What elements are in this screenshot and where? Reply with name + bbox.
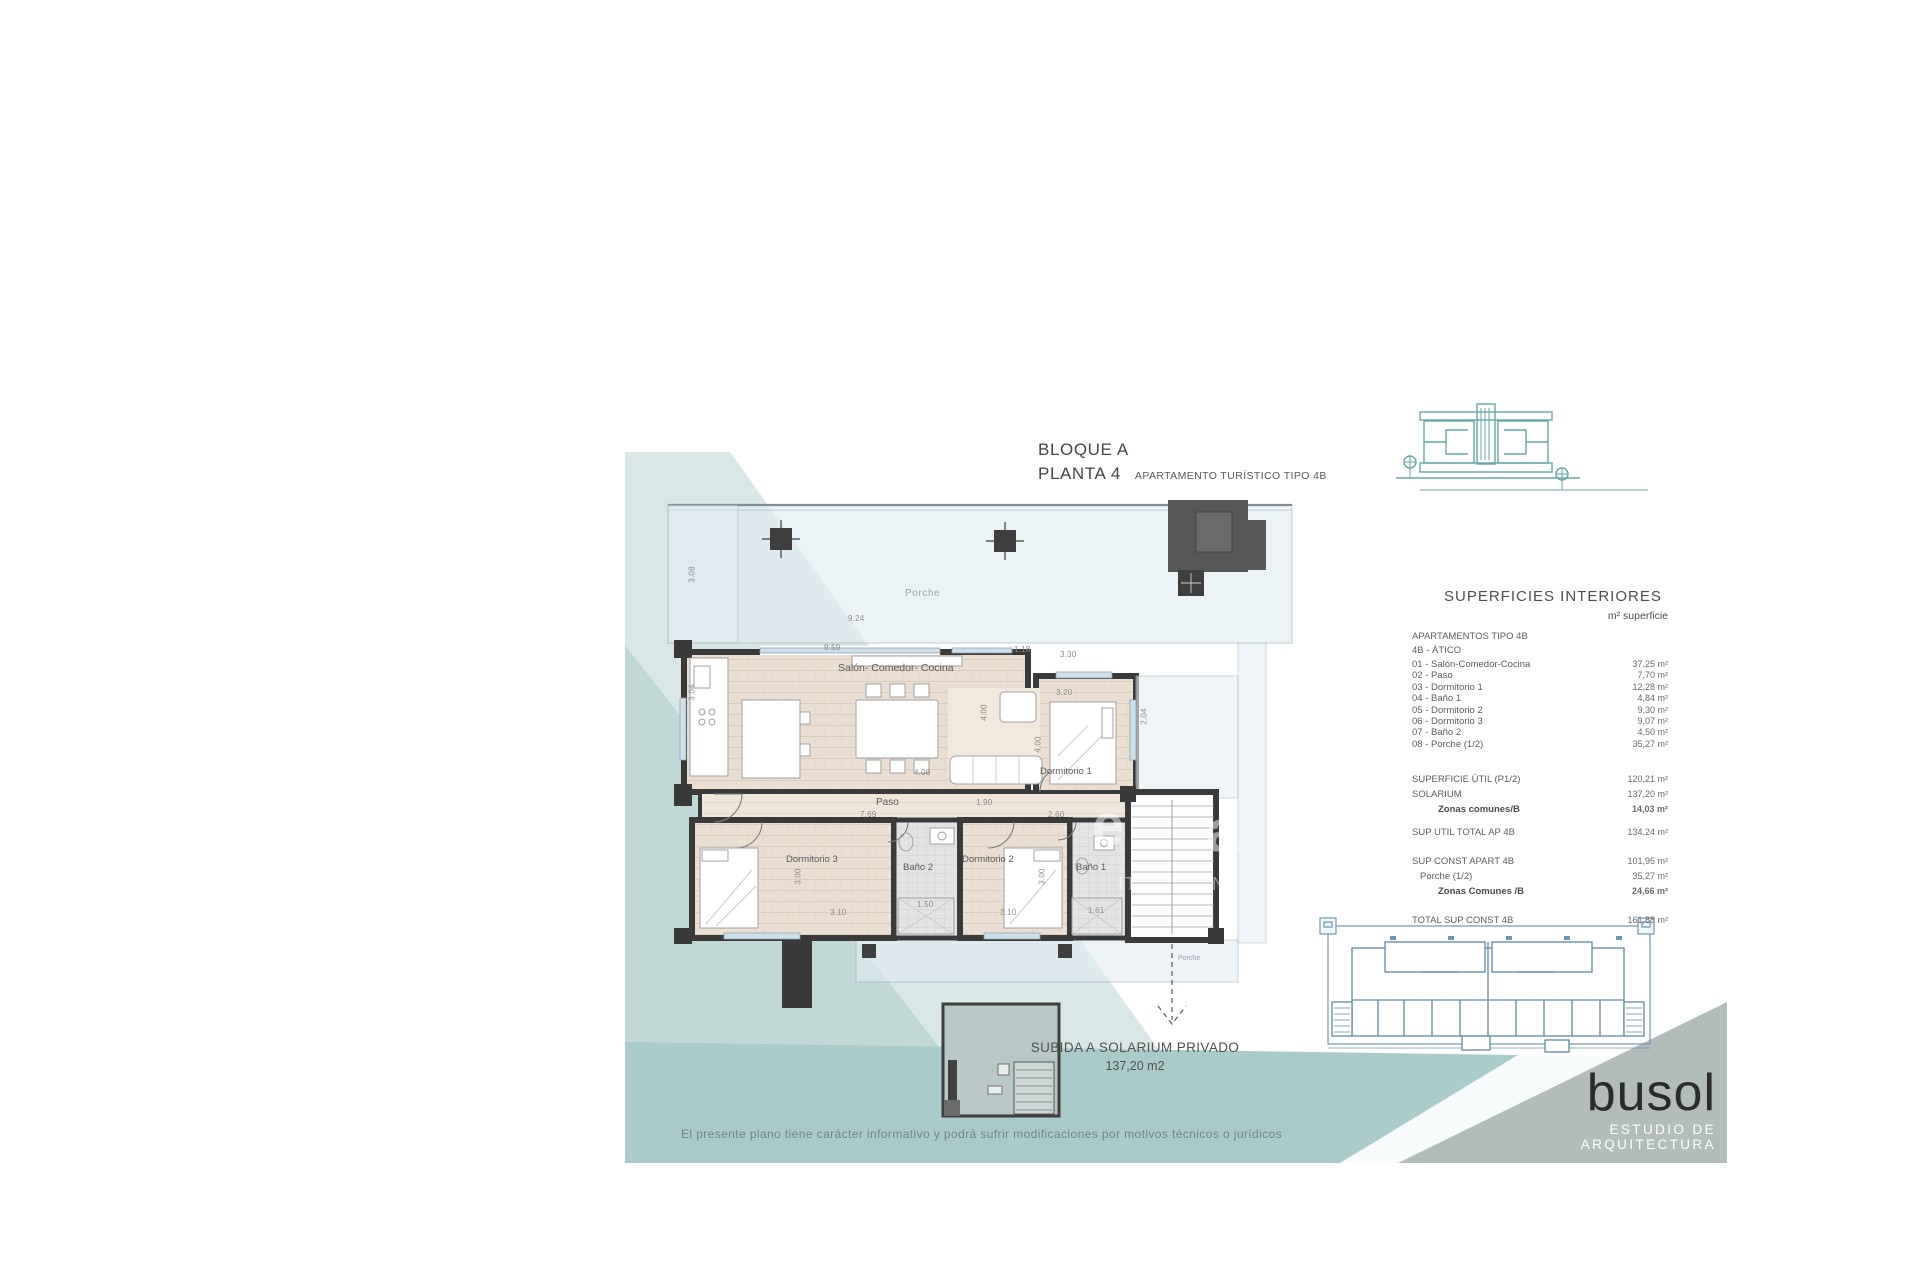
staircase <box>1128 792 1216 940</box>
dim-label: 1.90 <box>976 798 992 807</box>
dim-label: 3.00 <box>1038 868 1047 884</box>
solarium-note: SUBIDA A SOLARIUM PRIVADO 137,20 m2 <box>1010 1040 1260 1073</box>
table-row: Porche (1/2)35,27 m² <box>1412 869 1668 884</box>
surfaces-table: SUPERFICIES INTERIORES m² superficie APA… <box>1412 588 1668 928</box>
drawing-sheet: BLOQUE A PLANTA 4APARTAMENTO TURÍSTICO T… <box>0 0 1920 1280</box>
dim-label: 1.50 <box>917 900 933 909</box>
room-label-paso: Paso <box>876 797 899 808</box>
surfaces-group1-header: APARTAMENTOS TIPO 4B <box>1412 631 1668 642</box>
solarium-note-line2: 137,20 m2 <box>1010 1059 1260 1073</box>
watermark-fragment: IT <box>1118 874 1138 895</box>
dim-label: 2.04 <box>1140 708 1149 724</box>
dim-label: 4.00 <box>1034 736 1043 752</box>
dim-label: 2.60 <box>1048 810 1064 819</box>
room-label-dormitorio2: Dormitorio 2 <box>962 854 1014 865</box>
dim-label: 4.08 <box>914 768 930 777</box>
dim-label: 3.00 <box>794 868 803 884</box>
table-row: Zonas comunes/B14,03 m² <box>1412 802 1668 817</box>
disclaimer-text: El presente plano tiene carácter informa… <box>681 1127 1282 1141</box>
surfaces-total-util: SUP UTIL TOTAL AP 4B134,24 m² <box>1412 825 1668 840</box>
dim-label: 3.04 <box>688 684 697 700</box>
table-row: SUPERFICIE ÚTIL (P1/2)120,21 m² <box>1412 772 1668 787</box>
room-label-porche-top: Porche <box>905 588 940 599</box>
table-row: SUP UTIL TOTAL AP 4B134,24 m² <box>1412 825 1668 840</box>
watermark-fragment: N <box>1212 874 1227 895</box>
dim-label: 3.10 <box>830 908 846 917</box>
table-row: 01 - Salón-Comedor-Cocina37,25 m² <box>1412 659 1668 670</box>
watermark-fragment: a <box>1206 798 1238 865</box>
table-row: Zonas Comunes /B24,66 m² <box>1412 884 1668 899</box>
floor-title: PLANTA 4APARTAMENTO TURÍSTICO TIPO 4B <box>1038 462 1327 488</box>
table-row: 06 - Dormitorio 39,07 m² <box>1412 716 1668 727</box>
room-label-dormitorio1: Dormitorio 1 <box>1040 766 1092 777</box>
table-row: 05 - Dormitorio 29,30 m² <box>1412 705 1668 716</box>
table-row: 08 - Porche (1/2)35,27 m² <box>1412 739 1668 750</box>
dim-label: 3.10 <box>1000 908 1016 917</box>
room-label-bano1: Baño 1 <box>1076 862 1106 873</box>
solarium-note-line1: SUBIDA A SOLARIUM PRIVADO <box>1010 1040 1260 1055</box>
dim-label: 9.24 <box>848 614 864 623</box>
dim-label: 1.18 <box>1014 645 1030 654</box>
sheet-title-block: BLOQUE A PLANTA 4APARTAMENTO TURÍSTICO T… <box>1038 438 1327 488</box>
dim-label: 7.69 <box>860 810 876 819</box>
surfaces-summary-const: SUP CONST APART 4B101,95 m² Porche (1/2)… <box>1412 854 1668 899</box>
dim-label: 9.59 <box>824 643 840 652</box>
room-label-salon: Salón- Comedor- Cocina <box>838 662 954 674</box>
surfaces-summary-util: SUPERFICIE ÚTIL (P1/2)120,21 m² SOLARIUM… <box>1412 772 1668 817</box>
watermark-fragment: e <box>1092 792 1124 859</box>
surfaces-group2-header: 4B - ÁTICO <box>1412 645 1668 656</box>
surfaces-table-title: SUPERFICIES INTERIORES <box>1444 588 1668 605</box>
surfaces-unit-header: m² superficie <box>1412 610 1668 622</box>
floor-title-text: PLANTA 4 <box>1038 464 1121 483</box>
surfaces-room-rows: 01 - Salón-Comedor-Cocina37,25 m² 02 - P… <box>1412 659 1668 750</box>
surfaces-total-const: TOTAL SUP CONST 4B161,88 m² <box>1412 913 1668 928</box>
table-row: 02 - Paso7,70 m² <box>1412 670 1668 681</box>
table-row: 04 - Baño 14,84 m² <box>1412 693 1668 704</box>
room-label-dormitorio3: Dormitorio 3 <box>786 854 838 865</box>
site-key-plan <box>1320 918 1654 1052</box>
block-title: BLOQUE A <box>1038 438 1327 462</box>
table-row: 07 - Baño 24,50 m² <box>1412 727 1668 738</box>
apartment-type-subtitle: APARTAMENTO TURÍSTICO TIPO 4B <box>1135 464 1327 488</box>
table-row: TOTAL SUP CONST 4B161,88 m² <box>1412 913 1668 928</box>
dim-label: 1.61 <box>1088 906 1104 915</box>
brand-name: busol <box>1470 1066 1716 1120</box>
brand-tagline: ESTUDIO DE ARQUITECTURA <box>1470 1122 1716 1152</box>
brand-block: busol ESTUDIO DE ARQUITECTURA <box>1470 1066 1716 1152</box>
dim-label: 4.00 <box>980 704 989 720</box>
table-row: SOLARIUM137,20 m² <box>1412 787 1668 802</box>
table-row: 03 - Dormitorio 112,28 m² <box>1412 682 1668 693</box>
dim-label: 3.08 <box>688 566 697 582</box>
apartment-plan <box>668 500 1292 1024</box>
architect-logo <box>1396 404 1648 490</box>
dim-label: 3.20 <box>1056 688 1072 697</box>
room-label-porche-bottom: Porche <box>1178 955 1200 962</box>
table-row: SUP CONST APART 4B101,95 m² <box>1412 854 1668 869</box>
dim-label: 3.30 <box>1060 650 1076 659</box>
room-label-bano2: Baño 2 <box>903 862 933 873</box>
